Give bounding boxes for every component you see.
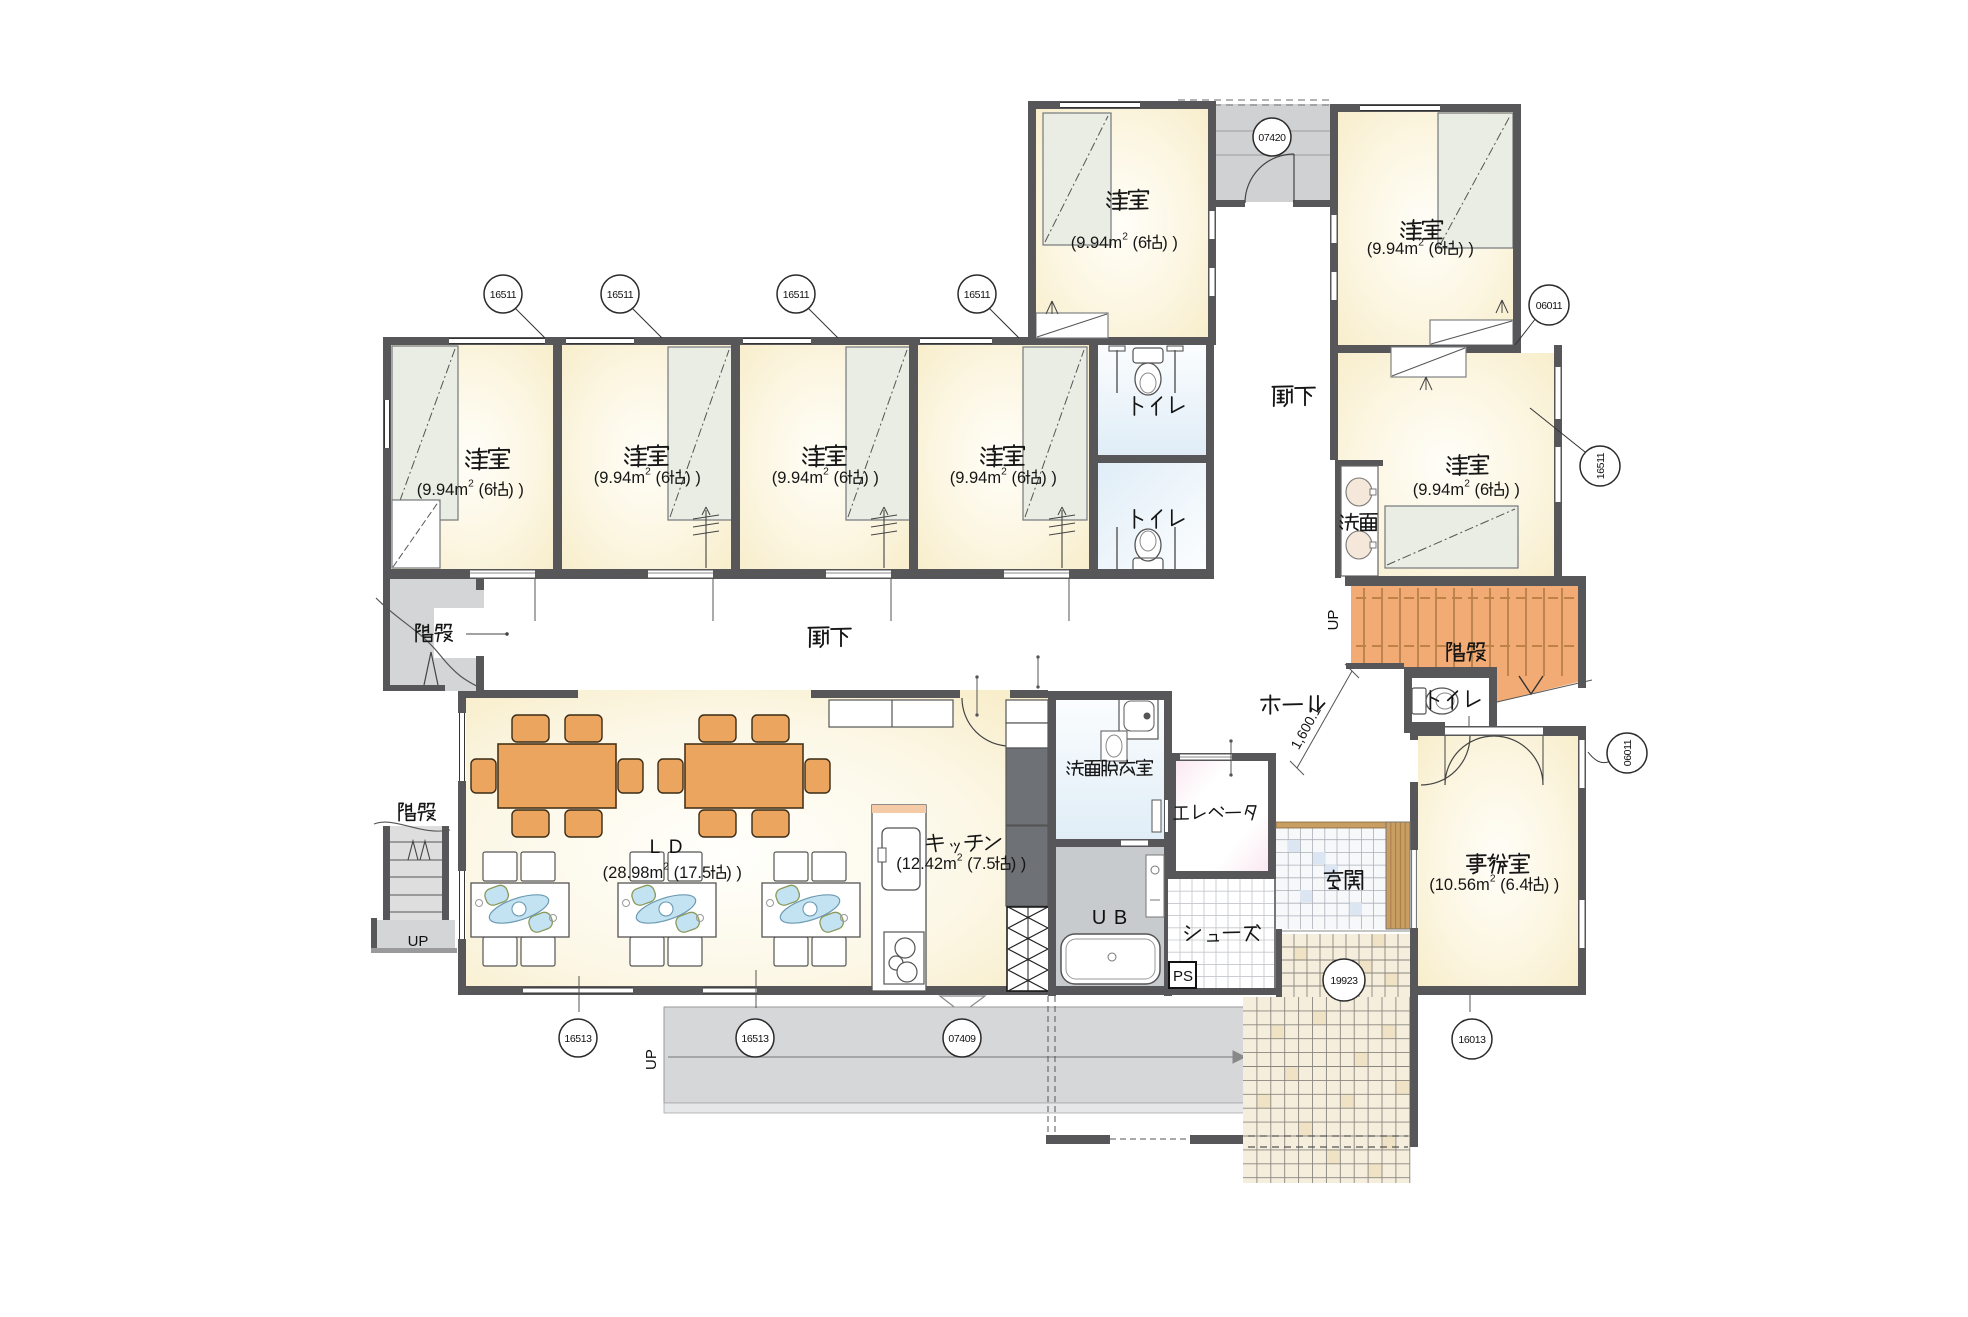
svg-text:(6: (6 — [1424, 240, 1443, 258]
svg-text:(6: (6 — [1470, 481, 1489, 499]
svg-text:(6: (6 — [1007, 469, 1026, 487]
svg-text:(12.42m: (12.42m — [896, 855, 957, 873]
svg-text:(7.5: (7.5 — [963, 855, 996, 873]
svg-text:16511: 16511 — [490, 289, 517, 301]
svg-text:(6: (6 — [474, 481, 493, 499]
svg-text:) ): ) ) — [1544, 876, 1560, 894]
svg-text:16511: 16511 — [964, 289, 991, 301]
svg-text:PS: PS — [1173, 968, 1193, 985]
svg-text:06011: 06011 — [1622, 739, 1634, 766]
svg-text:16013: 16013 — [1458, 1034, 1486, 1046]
svg-text:UP: UP — [643, 1049, 660, 1070]
svg-text:06011: 06011 — [1536, 300, 1563, 312]
svg-text:) ): ) ) — [1162, 234, 1178, 252]
svg-text:(9.94m: (9.94m — [772, 469, 823, 487]
svg-text:) ): ) ) — [1504, 481, 1520, 499]
svg-text:(9.94m: (9.94m — [950, 469, 1001, 487]
svg-text:(6: (6 — [1128, 234, 1147, 252]
svg-text:16513: 16513 — [564, 1033, 592, 1045]
svg-text:) ): ) ) — [863, 469, 879, 487]
svg-text:16511: 16511 — [783, 289, 810, 301]
svg-text:(9.94m: (9.94m — [594, 469, 645, 487]
svg-text:(17.5: (17.5 — [669, 864, 711, 882]
svg-text:07409: 07409 — [948, 1033, 976, 1045]
svg-text:16513: 16513 — [741, 1033, 769, 1045]
svg-text:19923: 19923 — [1330, 975, 1358, 987]
svg-text:) ): ) ) — [1011, 855, 1027, 873]
svg-text:(9.94m: (9.94m — [1367, 240, 1418, 258]
svg-text:(9.94m: (9.94m — [417, 481, 468, 499]
svg-text:(9.94m: (9.94m — [1413, 481, 1464, 499]
svg-text:(6.4: (6.4 — [1496, 876, 1529, 894]
svg-text:16511: 16511 — [1595, 452, 1607, 479]
svg-text:) ): ) ) — [726, 864, 742, 882]
svg-text:) ): ) ) — [1041, 469, 1057, 487]
svg-text:) ): ) ) — [1458, 240, 1474, 258]
svg-text:) ): ) ) — [685, 469, 701, 487]
svg-text:(9.94m: (9.94m — [1071, 234, 1122, 252]
svg-text:(6: (6 — [651, 469, 670, 487]
svg-text:UP: UP — [1325, 610, 1342, 631]
svg-text:) ): ) ) — [508, 481, 524, 499]
svg-text:U B: U B — [1092, 907, 1128, 929]
svg-text:07420: 07420 — [1258, 132, 1286, 144]
svg-text:UP: UP — [408, 933, 429, 950]
svg-text:16511: 16511 — [607, 289, 634, 301]
svg-text:(10.56m: (10.56m — [1429, 876, 1490, 894]
svg-text:(6: (6 — [829, 469, 848, 487]
svg-text:(28.98m: (28.98m — [603, 864, 664, 882]
svg-text:L D: L D — [650, 837, 685, 858]
